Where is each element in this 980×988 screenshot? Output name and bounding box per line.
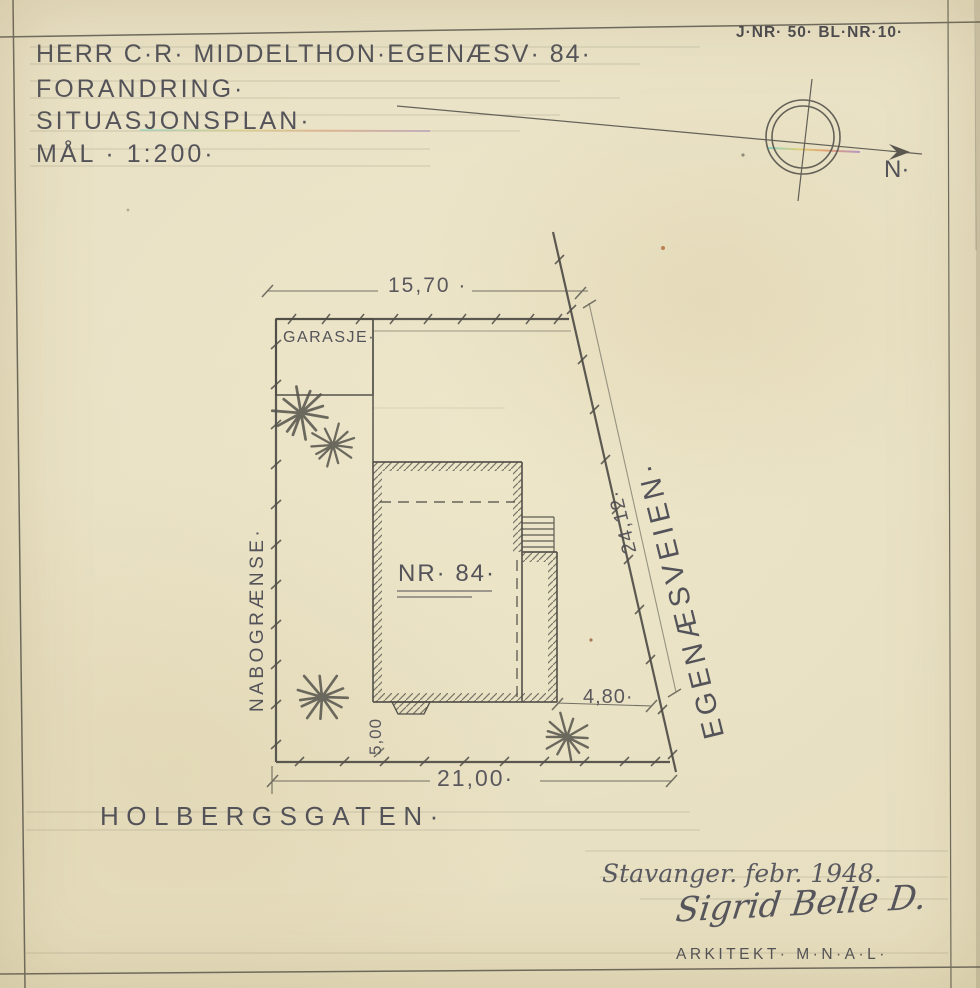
sheet-title-line1: HERR C·R· MIDDELTHON·EGENÆSV· 84·	[36, 40, 592, 69]
neighbor-boundary-label: NABOGRÆNSE·	[247, 527, 269, 712]
garage-label: GARASJE·	[283, 329, 375, 347]
sheet-title-line2: FORANDRING·	[36, 75, 245, 104]
architect-credential: ARKITEKT· M·N·A·L·	[676, 946, 888, 964]
dimension-bottom-width: 21,00·	[437, 765, 514, 792]
house-entry-stairs	[522, 517, 554, 552]
sheet-title-line4: MÅL · 1:200·	[36, 140, 216, 169]
house-outline	[373, 462, 557, 714]
house-number-label: NR· 84·	[398, 560, 496, 588]
dimension-house-to-street: 4,80·	[583, 686, 634, 709]
drawing-sheet: HERR C·R· MIDDELTHON·EGENÆSV· 84· FORAND…	[0, 0, 980, 988]
house-entrance-step	[392, 702, 430, 714]
paper-edge-shadow	[976, 0, 980, 988]
house-dashed-lines	[380, 502, 517, 697]
journal-number: J·NR· 50· BL·NR·10·	[736, 24, 903, 42]
sheet-title-line3: SITUASJONSPLAN·	[36, 107, 312, 136]
dimension-top-width: 15,70 ·	[388, 274, 467, 298]
north-arrow-compass-icon	[397, 79, 922, 201]
tree-icon	[285, 660, 358, 733]
north-label: N·	[884, 156, 909, 184]
street-holbergsgaten-label: HOLBERGSGATEN·	[100, 801, 446, 832]
dimension-house-to-boundary: 5,00	[366, 718, 386, 755]
house-number-underline	[397, 591, 492, 597]
